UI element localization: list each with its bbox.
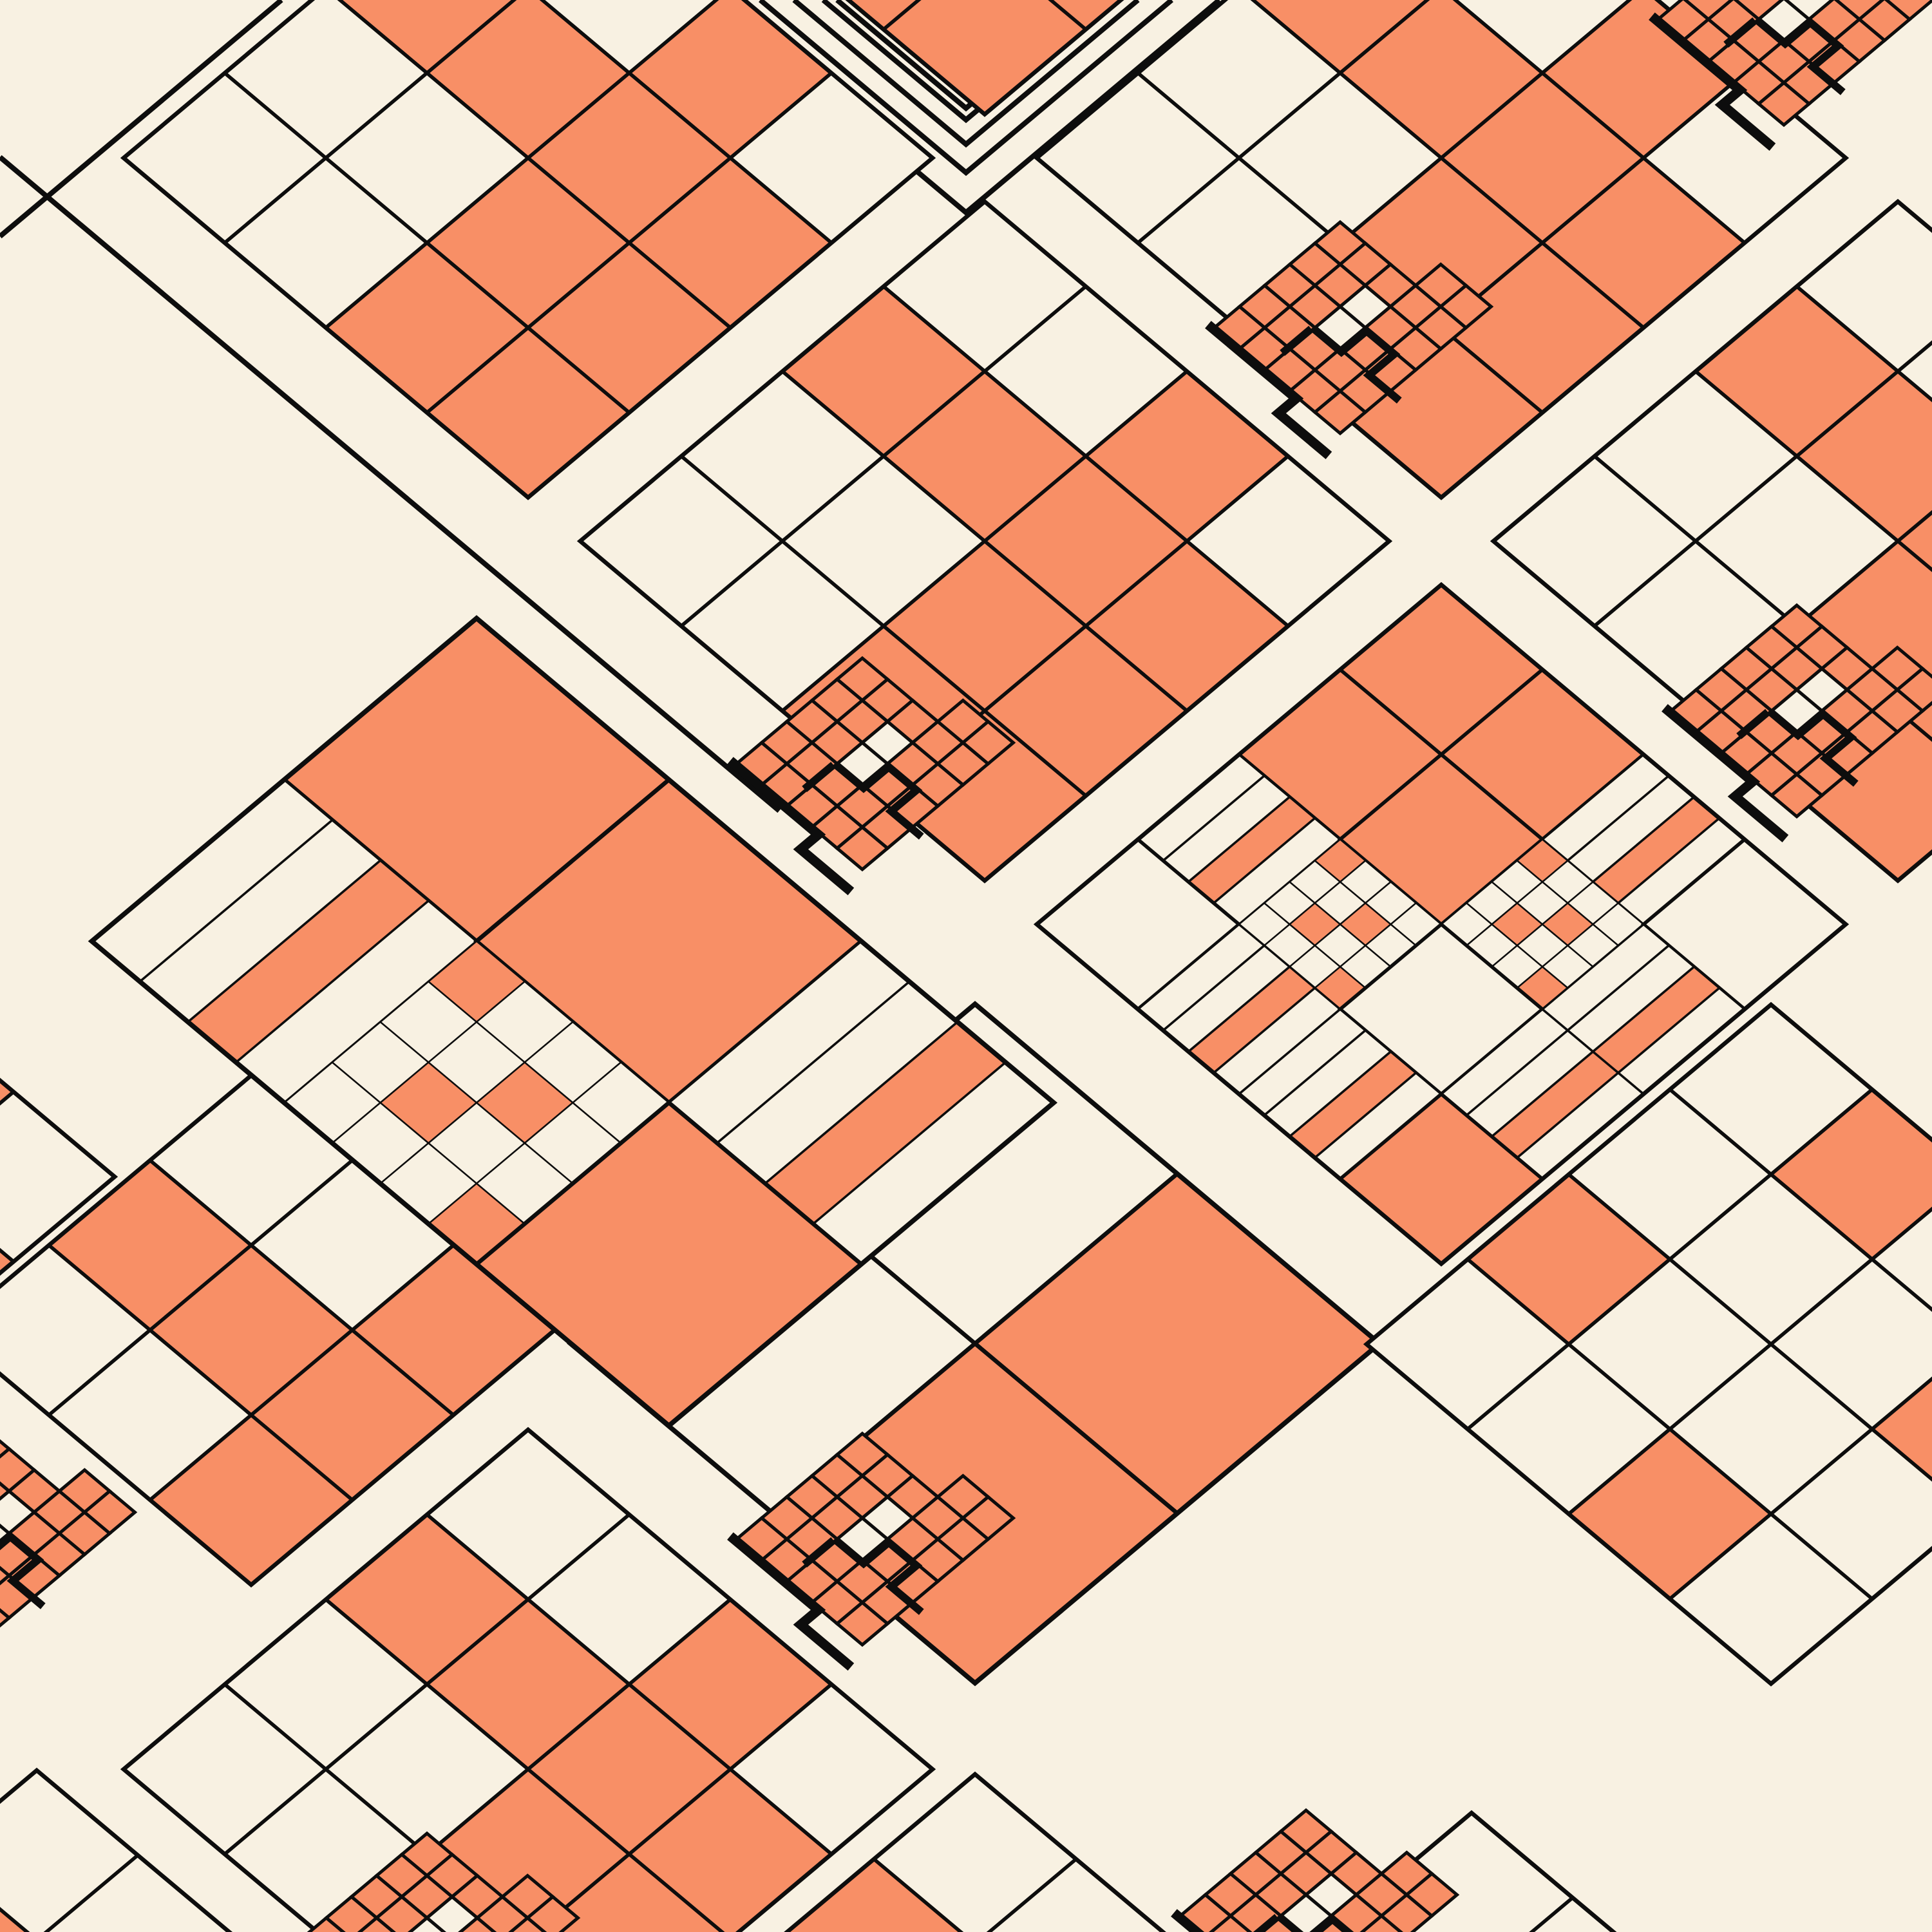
abstract-fractal-city-pattern	[0, 0, 1932, 1932]
artwork-canvas	[0, 0, 1932, 1932]
